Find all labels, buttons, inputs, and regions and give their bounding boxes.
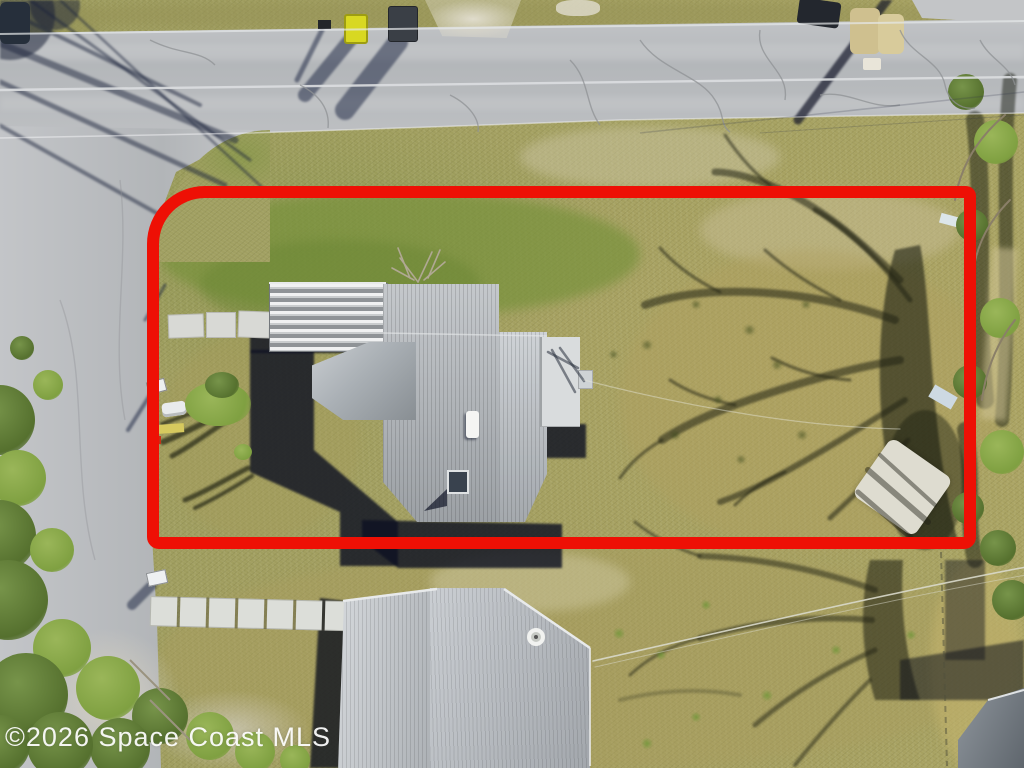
watermark: ©2026 Space Coast MLS: [5, 722, 331, 753]
property-boundary: [147, 186, 976, 549]
ac-fan: [527, 628, 545, 646]
aerial-photo: ©2026 Space Coast MLS: [0, 0, 1024, 768]
wire-shadows: [640, 92, 1024, 133]
road-markings: [0, 21, 1024, 138]
corner-roof-edge: [988, 690, 1024, 700]
